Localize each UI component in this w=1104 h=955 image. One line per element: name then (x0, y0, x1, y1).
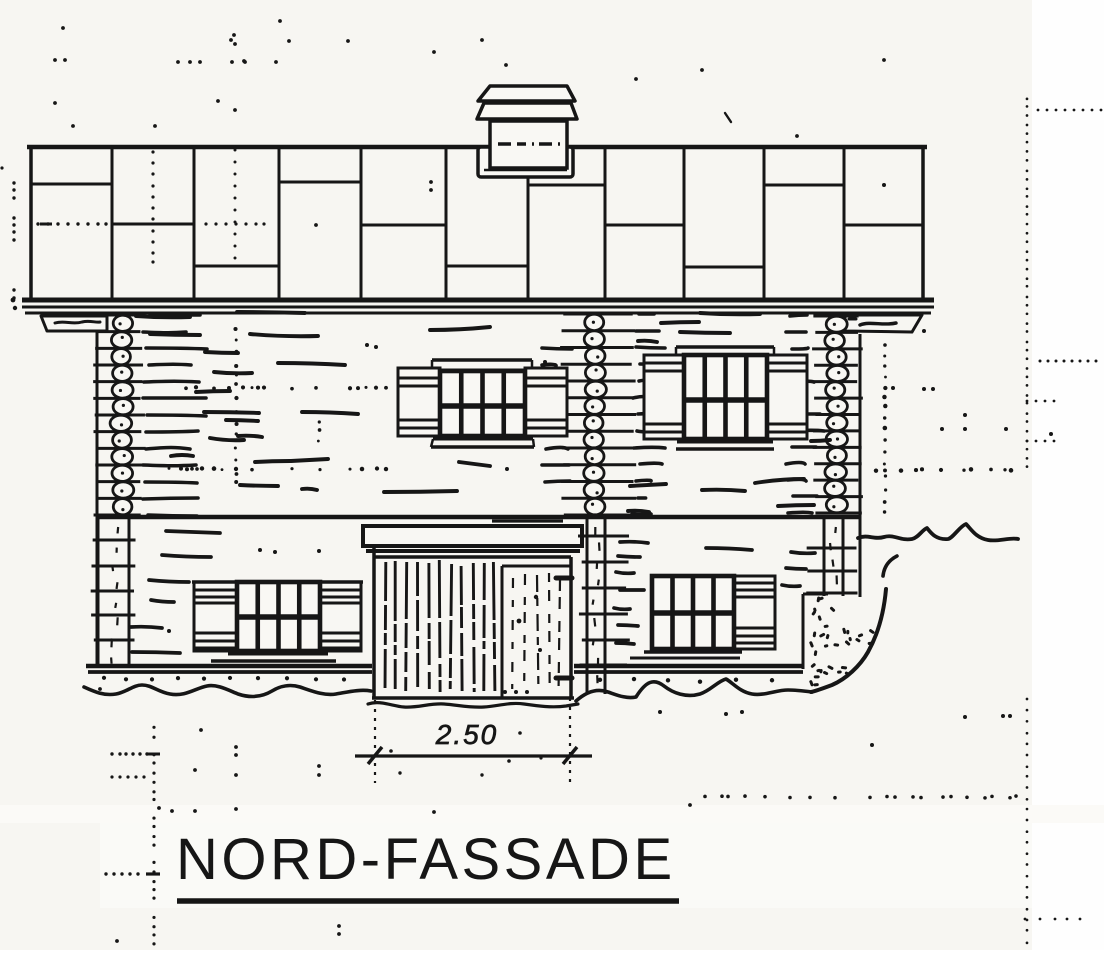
svg-text:NORD-FASSADE: NORD-FASSADE (176, 827, 676, 892)
svg-text:2.50: 2.50 (435, 719, 499, 750)
